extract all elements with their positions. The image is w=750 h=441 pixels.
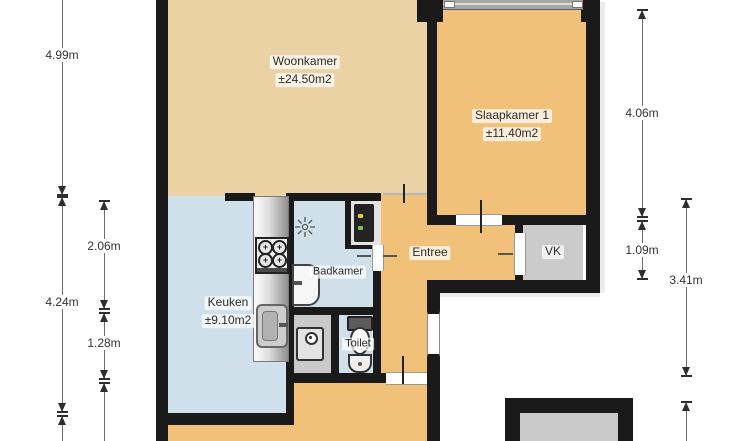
wall-entree-bottom: [427, 280, 600, 293]
wall-shadow: [600, 2, 605, 293]
dimension-label: 4.99m: [43, 48, 80, 62]
room-label-vk: VK: [542, 245, 564, 259]
room-area-woonkamer: ±24.50m2: [275, 73, 334, 87]
floorplan: + + + + Woonkamer ±24.50m: [0, 0, 750, 441]
wall-left-outer: [156, 0, 168, 441]
fountain-basin-icon: [348, 354, 372, 373]
wall-shower-toilet: [331, 315, 339, 375]
dimension-label: 2.06m: [85, 239, 122, 253]
wall-toilet-bottom: [286, 373, 386, 383]
dimension-label: 1.28m: [85, 336, 122, 350]
boiler-light: [358, 226, 363, 230]
wall-right-outer: [586, 0, 600, 295]
window-icon-corridor: [427, 311, 440, 357]
room-label-badkamer: Badkamer: [310, 266, 366, 279]
door-opening-badkamer: [372, 245, 384, 271]
boiler-light: [358, 214, 363, 218]
light-icon: [294, 216, 316, 238]
wall-keuken-stub: [225, 193, 255, 201]
door-opening-slaapkamer: [456, 214, 502, 226]
sink-icon: [256, 304, 288, 348]
faucet-icon: [279, 323, 288, 327]
wall-slaapkamer-bottom: [427, 215, 600, 225]
door-swing-line: [402, 356, 404, 384]
room-bottom-b: [168, 425, 294, 441]
door-opening-vk: [514, 233, 526, 275]
room-area-keuken: ±9.10m2: [202, 314, 255, 328]
boiler-icon: [354, 204, 374, 242]
threshold-woonkamer-entree: [383, 193, 427, 195]
dimension-label: 4.06m: [623, 106, 660, 120]
stove-knobs: [257, 268, 287, 272]
room-label-toilet: Toilet: [342, 338, 374, 351]
wall-slaapkamer-left: [427, 0, 437, 225]
room-entree: [381, 195, 515, 283]
stove-icon: + + + +: [255, 237, 289, 274]
door-dash: [498, 253, 513, 255]
window-cap: [444, 1, 455, 8]
wall-corridor-right: [427, 280, 440, 441]
wall-slaapkamer-corner-left: [417, 0, 443, 22]
room-label-keuken: Keuken: [205, 296, 252, 310]
room-area-slaapkamer1: ±11.40m2: [483, 127, 541, 141]
wall-badkamer-bottom: [286, 307, 381, 315]
door-dash: [357, 255, 371, 257]
threshold-tick: [403, 184, 405, 203]
window-cap: [572, 1, 583, 8]
dimension-label: 4.24m: [43, 295, 80, 309]
washer-dot: [309, 336, 312, 339]
faucet-icon: [294, 281, 302, 285]
burner-icon: +: [258, 253, 273, 268]
room-bottom-a: [294, 383, 427, 441]
dimension-label: 3.41m: [667, 273, 704, 287]
door-opening-bottom-room: [386, 372, 427, 385]
window-icon-slaapkamer: [443, 0, 583, 10]
door-dash: [383, 255, 397, 257]
fountain-dot: [358, 362, 362, 366]
wall-toilet-right: [373, 313, 381, 375]
room-label-woonkamer: Woonkamer: [270, 55, 340, 69]
room-label-entree: Entree: [409, 246, 450, 260]
window-glass: [443, 3, 583, 5]
room-woonkamer: [168, 0, 430, 197]
wall-slaapkamer-corner-right: [581, 0, 600, 22]
dimension-label: 1.09m: [623, 243, 660, 257]
room-corridor: [381, 283, 427, 383]
burner-icon: +: [272, 253, 287, 268]
room-label-slaapkamer1: Slaapkamer 1: [472, 109, 552, 123]
sink-basin: [262, 311, 278, 341]
washer-icon: [296, 327, 324, 361]
wall-shadow2: [440, 293, 600, 297]
wall-badkamer-top: [286, 193, 381, 201]
door-swing-line: [480, 200, 482, 233]
wall-keuken-bottom: [156, 413, 294, 425]
balcony-floor: [520, 413, 618, 441]
